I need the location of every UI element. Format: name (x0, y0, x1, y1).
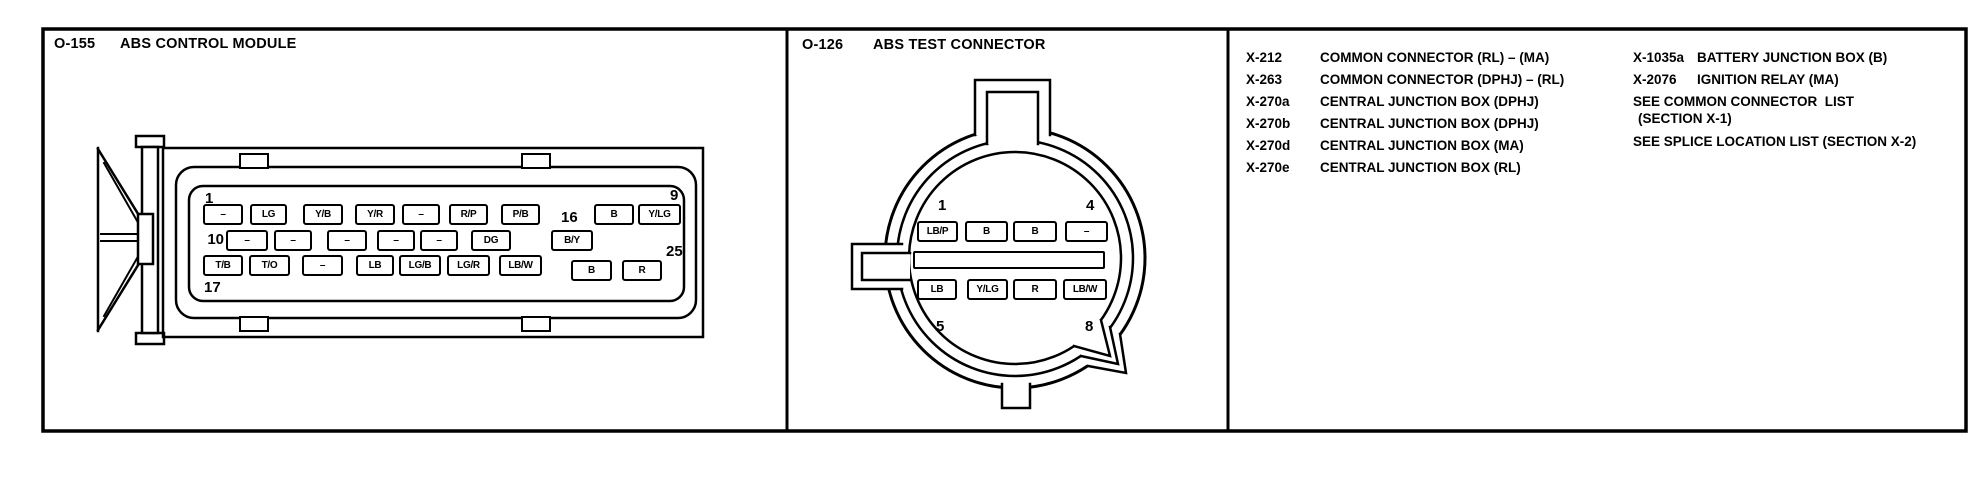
pin-box: – (1065, 221, 1108, 242)
pin-box: B/Y (551, 230, 593, 251)
ref-code: X-263 (1246, 72, 1282, 87)
pin-box: R/P (449, 204, 488, 225)
pin-number: 9 (670, 187, 678, 204)
ref-name: CENTRAL JUNCTION BOX (MA) (1320, 138, 1524, 153)
pin-box: LB (356, 255, 394, 276)
pin-box: B (571, 260, 612, 281)
pin-box: Y/LG (967, 279, 1008, 300)
pin-box: B (594, 204, 634, 225)
pin-box: B (965, 221, 1008, 242)
pin-box: LB/P (917, 221, 958, 242)
ref-name: CENTRAL JUNCTION BOX (DPHJ) (1320, 116, 1539, 131)
wiring-diagram-page: O-155 ABS CONTROL MODULE 1 9 10 16 17 25… (0, 0, 1988, 480)
pin-box: R (1013, 279, 1057, 300)
pin-number: 16 (561, 209, 578, 226)
ref-name: BATTERY JUNCTION BOX (B) (1697, 50, 1887, 65)
note-line: (SECTION X-1) (1638, 111, 1732, 126)
pin-number: 5 (936, 318, 944, 335)
pin-box: Y/B (303, 204, 343, 225)
pin-box: LG/R (447, 255, 490, 276)
abs-test-connector-drawing (852, 80, 1145, 408)
ref-name: COMMON CONNECTOR (DPHJ) – (RL) (1320, 72, 1564, 87)
note-line: SEE SPLICE LOCATION LIST (SECTION X-2) (1633, 134, 1916, 149)
pin-box: – (302, 255, 343, 276)
pin-box: – (274, 230, 312, 251)
pin-number: 25 (666, 243, 683, 260)
ref-code: X-2076 (1633, 72, 1677, 87)
pin-box: T/B (203, 255, 243, 276)
note-line: SEE COMMON CONNECTOR LIST (1633, 94, 1854, 109)
pin-box: DG (471, 230, 511, 251)
pin-box: LG (250, 204, 287, 225)
pin-box: LB/W (1063, 279, 1107, 300)
pin-number: 4 (1086, 197, 1094, 214)
ref-code: X-212 (1246, 50, 1282, 65)
pin-box: – (402, 204, 440, 225)
pin-box: T/O (249, 255, 290, 276)
test-connector-title: ABS TEST CONNECTOR (873, 37, 1046, 53)
connector-slot (913, 251, 1105, 269)
test-connector-code: O-126 (802, 37, 843, 53)
ref-name: CENTRAL JUNCTION BOX (RL) (1320, 160, 1521, 175)
ref-name: COMMON CONNECTOR (RL) – (MA) (1320, 50, 1549, 65)
ref-code: X-270a (1246, 94, 1290, 109)
pin-box: – (226, 230, 268, 251)
pin-box: LB (917, 279, 957, 300)
pin-box: – (377, 230, 415, 251)
abs-module-title: ABS CONTROL MODULE (120, 36, 297, 52)
pin-box: B (1013, 221, 1057, 242)
ref-name: CENTRAL JUNCTION BOX (DPHJ) (1320, 94, 1539, 109)
pin-box: R (622, 260, 662, 281)
pin-box: LG/B (399, 255, 441, 276)
pin-number: 10 (200, 231, 224, 248)
pin-number: 1 (938, 197, 946, 214)
pin-box: LB/W (499, 255, 542, 276)
pin-number: 8 (1085, 318, 1093, 335)
pin-box: Y/R (355, 204, 395, 225)
ref-code: X-270b (1246, 116, 1290, 131)
ref-code: X-270e (1246, 160, 1290, 175)
ref-code: X-270d (1246, 138, 1290, 153)
pin-box: – (327, 230, 367, 251)
abs-module-code: O-155 (54, 36, 95, 52)
ref-name: IGNITION RELAY (MA) (1697, 72, 1839, 87)
pin-box: Y/LG (638, 204, 681, 225)
pin-box: – (420, 230, 458, 251)
pin-number: 17 (204, 279, 221, 296)
ref-code: X-1035a (1633, 50, 1684, 65)
pin-box: – (203, 204, 243, 225)
pin-box: P/B (501, 204, 540, 225)
